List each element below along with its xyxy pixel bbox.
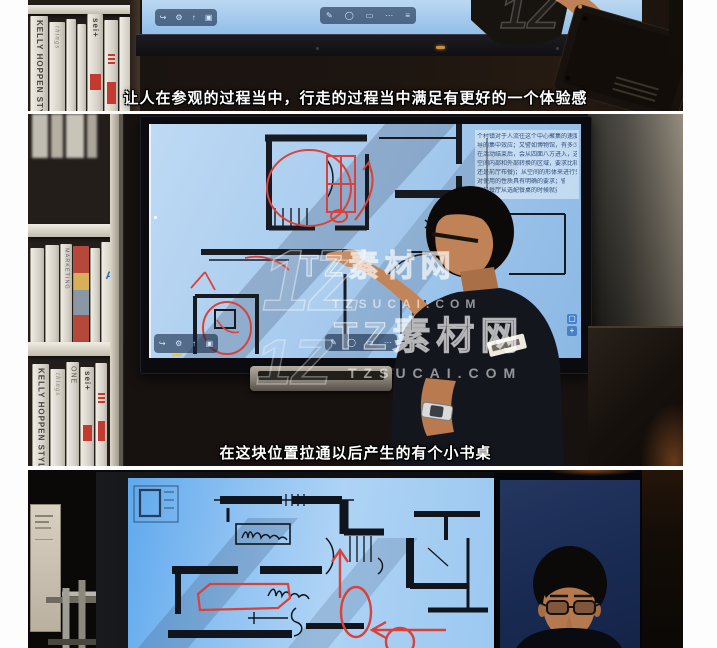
book-title: things: [54, 26, 62, 49]
speaker-face: [500, 480, 640, 648]
video-frame-1: KELLY HOPPEN STYLE things sei+ ↪ ⚙: [28, 0, 683, 111]
book-spine-art: [73, 246, 89, 342]
settings-icon[interactable]: ⚙: [175, 14, 182, 22]
book-spine: [51, 114, 63, 158]
save-icon[interactable]: ↑: [192, 340, 196, 348]
shelf-row-upper: MARKETING A: [30, 242, 112, 342]
pen-icon[interactable]: ✎: [326, 12, 333, 20]
wall-shading: [588, 114, 683, 332]
power-indicator-light: [436, 46, 445, 49]
document-text-line: 空间内部和外部转换的区域，要求比较宽: [477, 160, 577, 169]
book-spine: [45, 245, 59, 342]
shapes-icon[interactable]: ⋯: [385, 12, 393, 20]
book-title: sei+: [83, 371, 92, 391]
eraser-icon[interactable]: ▭: [366, 12, 374, 20]
exit-icon[interactable]: ↪: [159, 340, 166, 348]
exit-icon[interactable]: ↪: [160, 14, 167, 22]
book-spine: [66, 114, 84, 158]
book-title: ONE: [70, 366, 77, 384]
capture-icon[interactable]: ▣: [205, 14, 213, 22]
screen-toolbar-left: ↪ ⚙ ↑ ▣: [154, 334, 218, 353]
settings-icon[interactable]: ⚙: [175, 340, 182, 348]
touchscreen-closeup-canvas[interactable]: [128, 478, 494, 648]
document-text-line: 在活动结束后，会从四面八方进入，这就: [477, 151, 577, 160]
video-frame-3: [28, 470, 683, 648]
book-title: MARKETING: [64, 248, 70, 290]
video-frame-2: MARKETING A KELLY HOPPEN STYLE things ON…: [28, 114, 683, 466]
bookshelf-middle: MARKETING A KELLY HOPPEN STYLE things ON…: [28, 114, 124, 466]
save-icon[interactable]: ↑: [192, 14, 196, 22]
lasso-icon[interactable]: ◯: [345, 12, 354, 20]
cursor-dot: [154, 216, 157, 219]
book-spine: [32, 114, 48, 158]
dark-wall-strip: [642, 470, 683, 648]
more-icon[interactable]: ≡: [405, 12, 410, 20]
screen-toolbar-pens: ✎ ◯ ▭ ⋯ ≡: [320, 7, 416, 24]
camera-monitor-screen: [500, 480, 640, 648]
video-collage: KELLY HOPPEN STYLE things sei+ ↪ ⚙: [0, 0, 717, 648]
shelf-board: [28, 224, 120, 237]
document-text-line: 还是前厅布餐)；从空间的形体来进行分: [477, 169, 577, 178]
shelf-board: [28, 5, 134, 14]
spine-red-text: [108, 54, 116, 64]
screen-toolbar-left: ↪ ⚙ ↑ ▣: [155, 9, 217, 26]
shelf-post-front: [110, 114, 119, 466]
floor-plan-sketch-closeup: [128, 478, 494, 648]
bezel-dot: [316, 47, 319, 50]
book-spine: [90, 248, 100, 342]
blurred-books-row: [32, 114, 112, 158]
presenter: [320, 180, 575, 466]
subtitle-line-2: 在这块位置拉通以后产生的有个小书桌: [28, 442, 683, 463]
active-tool-underline: [172, 354, 182, 356]
document-text-line: 导的集中效应；又譬如博物馆，有多少时: [477, 142, 577, 151]
spine-red-label: [83, 425, 92, 441]
capture-icon[interactable]: ▣: [206, 340, 214, 348]
poster-text-bar: [35, 521, 49, 523]
book-spine-marketing: MARKETING: [60, 244, 72, 342]
touchscreen-closeup-bezel: [96, 472, 498, 648]
book-spine: [30, 248, 44, 342]
book-title: sei+: [91, 18, 100, 38]
subtitle-line-1: 让人在参观的过程当中，行走的过程当中满足有更好的一个体验感: [28, 87, 683, 108]
camera-monitor: [494, 473, 644, 648]
shelf-post-back: [119, 114, 123, 466]
ceiling-light-glow: [548, 470, 638, 476]
document-text-line: 个村镇对于人流往这个中心聚集的速度: [477, 133, 577, 142]
spine-red-label: [98, 421, 106, 441]
spine-red-text: [98, 393, 105, 403]
shelf-board: [28, 342, 122, 356]
book-title: things: [54, 373, 62, 396]
poster-text-bar: [35, 515, 53, 517]
poster-text-bar: [35, 527, 51, 529]
book-spine: [87, 114, 97, 158]
